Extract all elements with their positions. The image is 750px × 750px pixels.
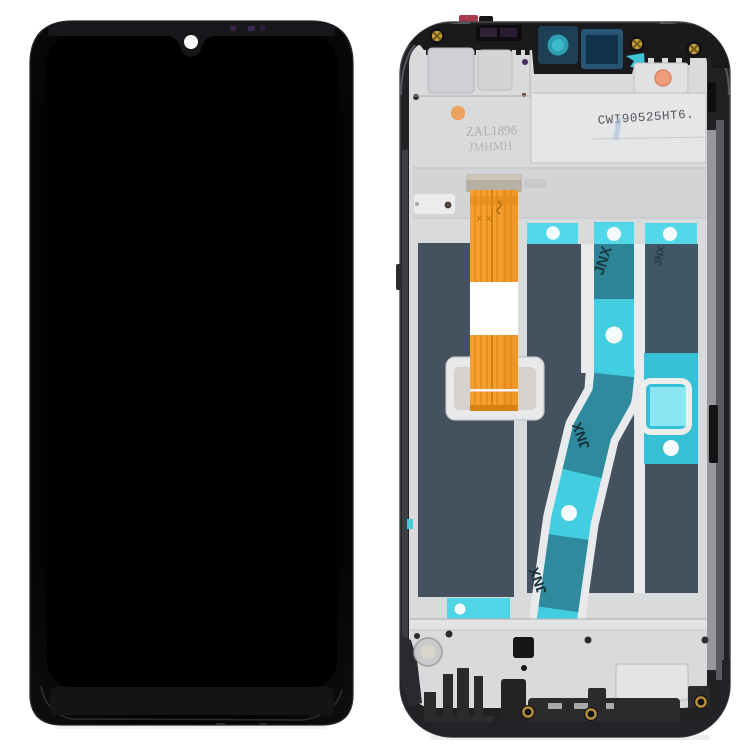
svg-text:JMHMH: JMHMH: [469, 138, 513, 154]
svg-text:ZAL1896: ZAL1896: [466, 122, 518, 139]
